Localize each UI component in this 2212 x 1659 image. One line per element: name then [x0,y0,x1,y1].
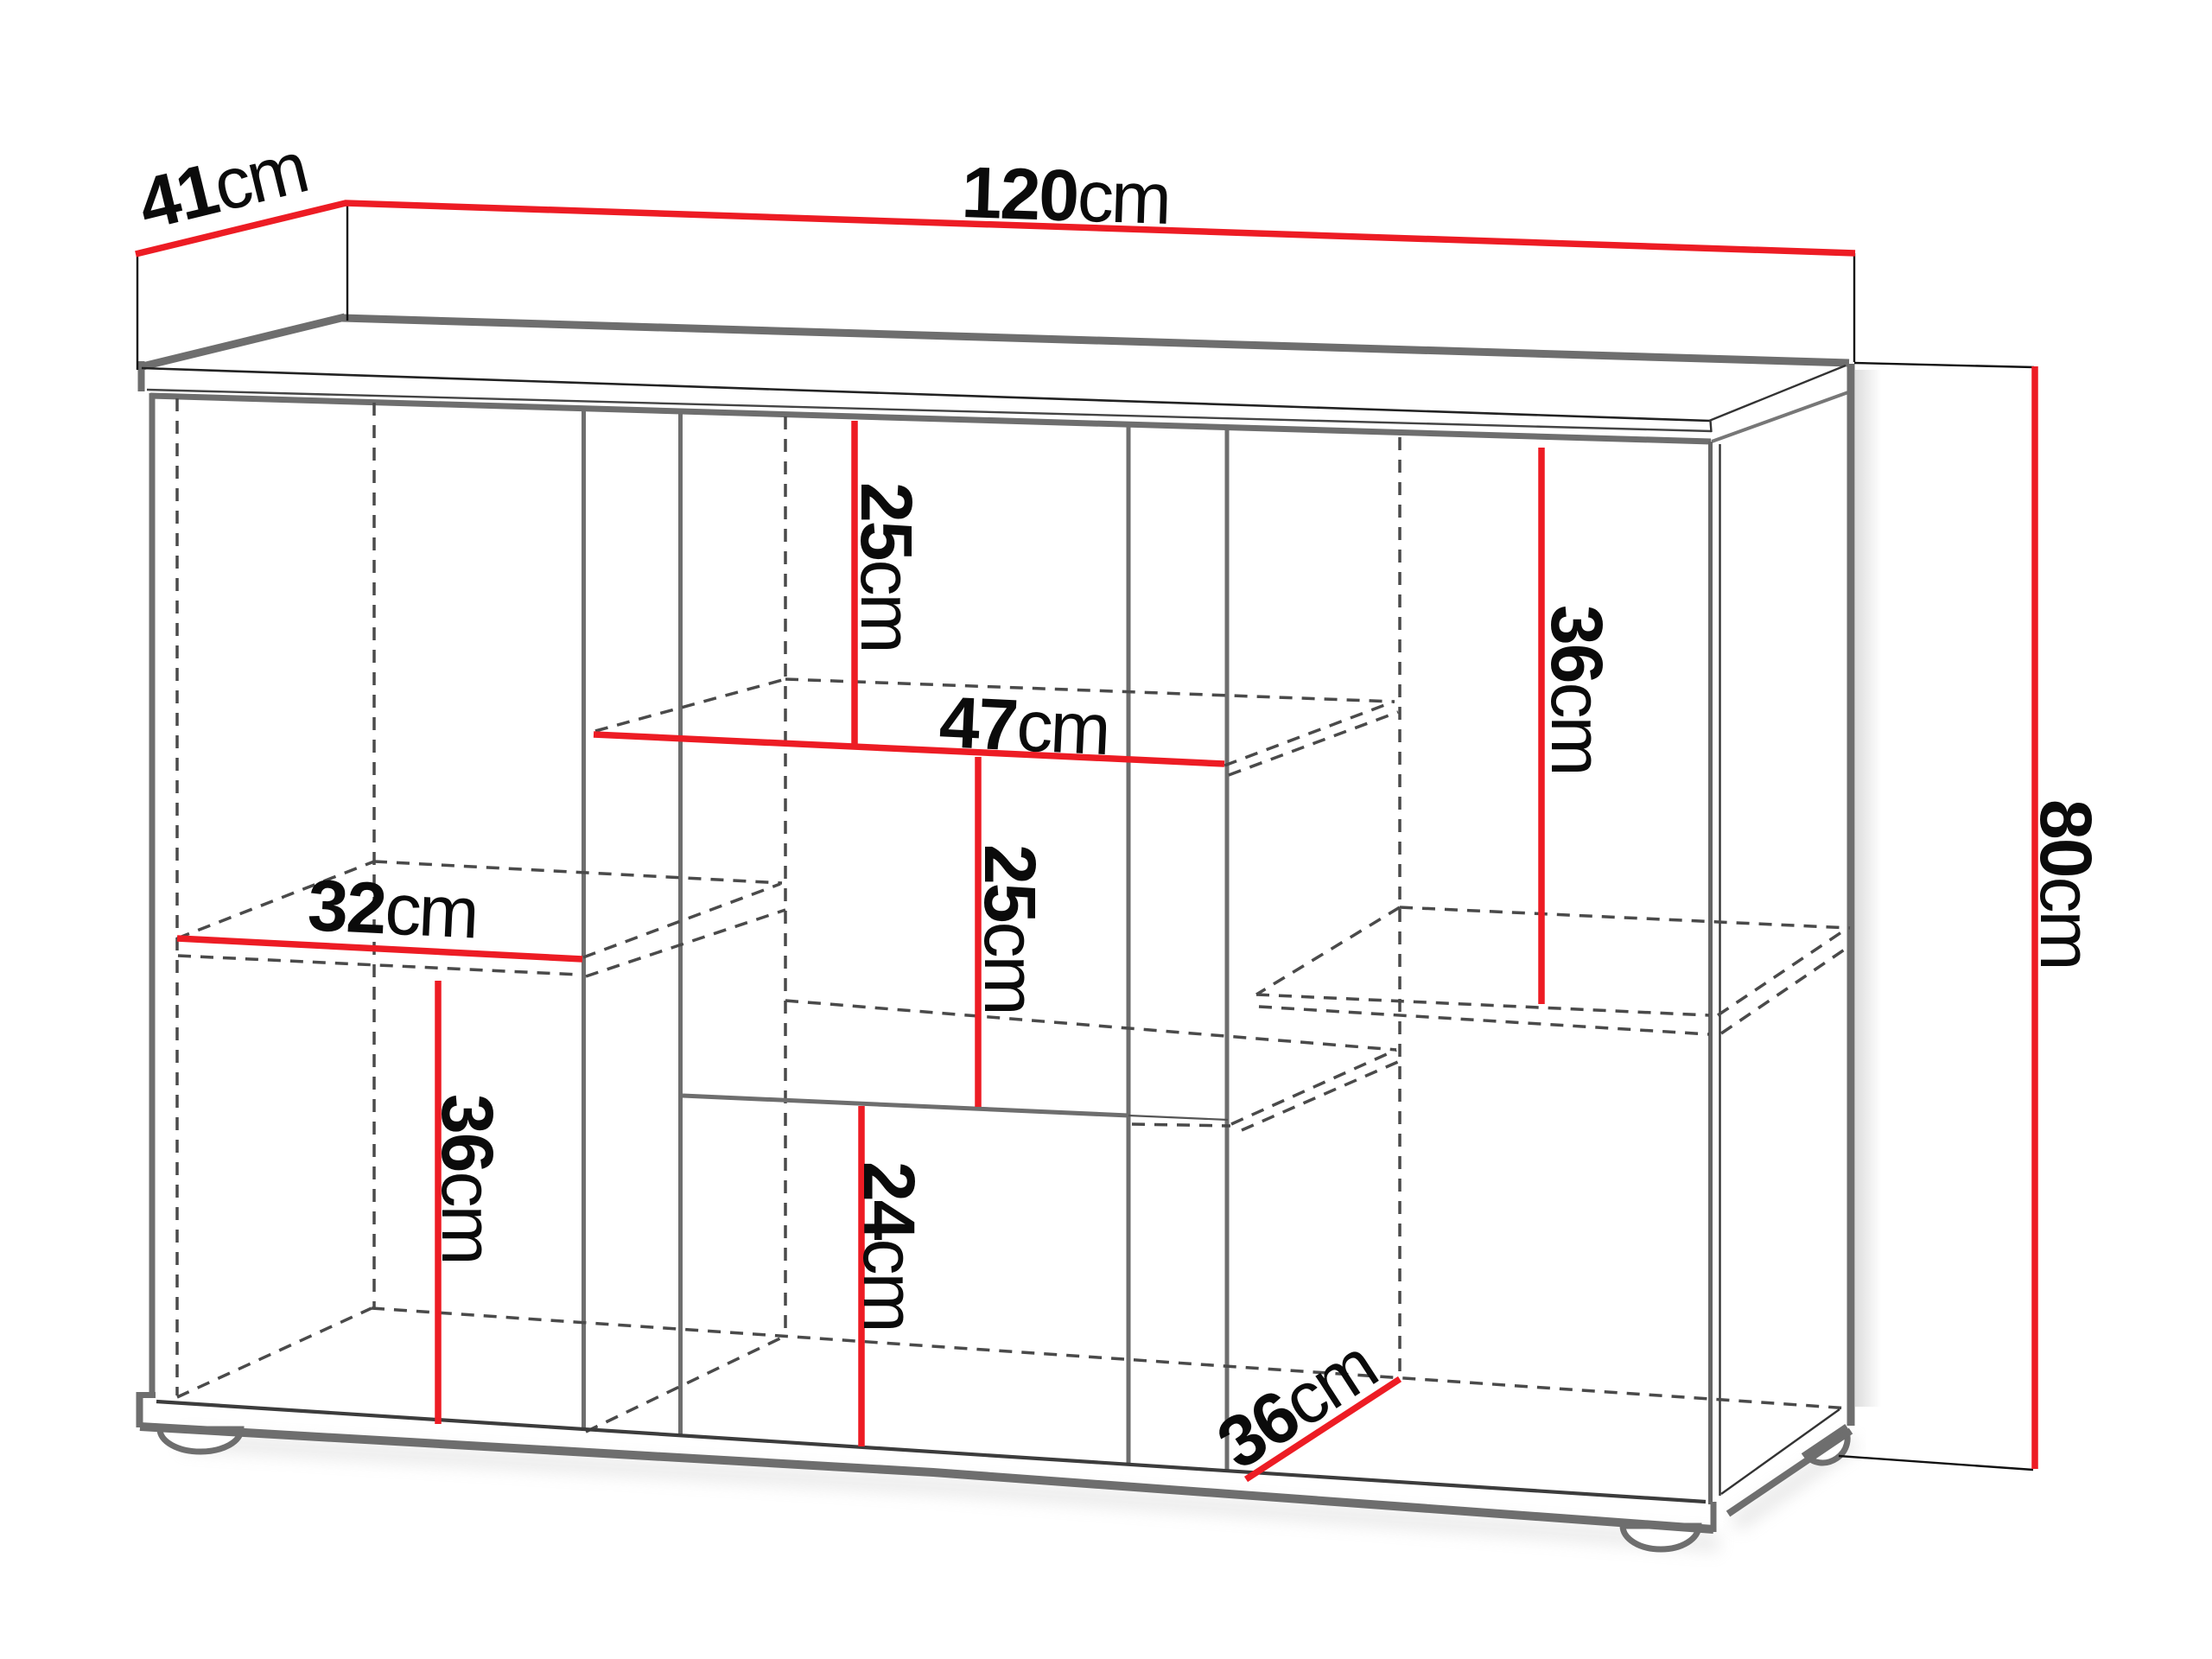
svg-text:120cm: 120cm [960,151,1170,239]
svg-text:41cm: 41cm [130,126,314,245]
svg-text:24cm: 24cm [849,1161,930,1330]
svg-text:47cm: 47cm [938,681,1110,770]
svg-text:25cm: 25cm [969,844,1051,1013]
svg-text:36cm: 36cm [1536,605,1618,773]
svg-text:36cm: 36cm [427,1094,508,1262]
svg-text:25cm: 25cm [846,482,927,651]
svg-text:80cm: 80cm [2025,799,2107,968]
svg-text:36cm: 36cm [1204,1325,1389,1484]
svg-text:32cm: 32cm [306,864,479,953]
